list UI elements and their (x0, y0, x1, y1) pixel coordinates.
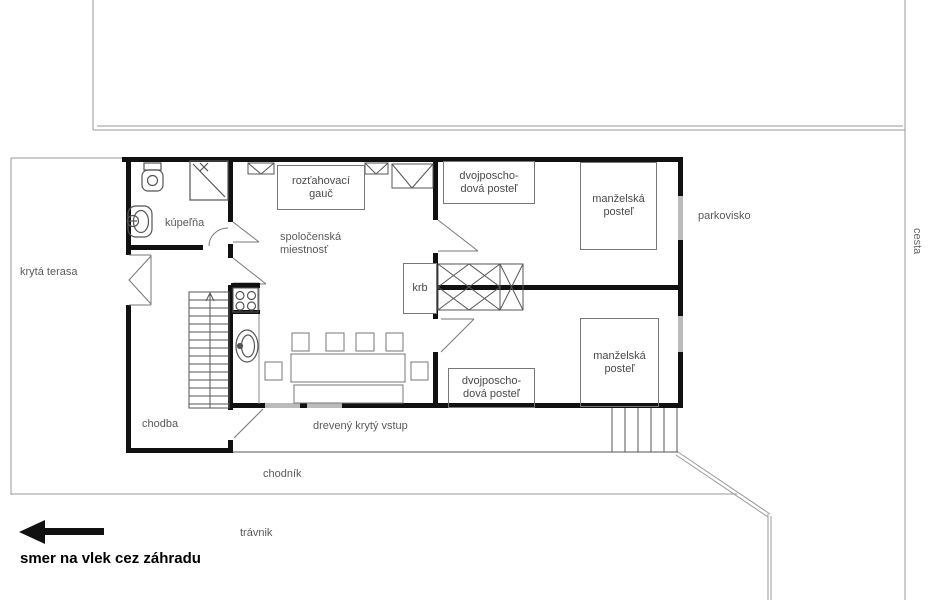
entrance-door (234, 409, 263, 438)
toilet (142, 163, 163, 191)
label-direction: smer na vlek cez záhradu (20, 550, 201, 567)
sofa-box: rozťahovací gauč (277, 165, 365, 210)
label-parking: parkovisko (698, 210, 751, 223)
terrace-door-symbol (129, 255, 151, 305)
label-entrance: drevený krytý vstup (313, 420, 408, 433)
plan-linework (0, 0, 932, 600)
chair (356, 333, 374, 351)
dining-bench (294, 385, 403, 403)
sofa-label-line1: rozťahovací (292, 175, 350, 188)
kitchen-sink (236, 330, 258, 362)
double-bed-label-line2: posteľ (604, 363, 634, 376)
label-hallway: chodba (142, 418, 178, 431)
double-bed-label-line1: manželská (592, 193, 645, 206)
dining-set (265, 333, 428, 403)
bathroom-door-arc (209, 228, 228, 246)
kitchen-counter (233, 283, 259, 404)
bunk-bed-label-line1: dvojposcho- (462, 375, 521, 388)
chair (326, 333, 344, 351)
garden-diagonal-path (676, 452, 771, 600)
bunk-bed-bottom-box: dvojposcho- dová posteľ (448, 368, 535, 408)
fireplace-label: krb (412, 282, 427, 295)
bathroom-sink (128, 206, 153, 237)
label-living-room: spoločenská miestnosť (280, 231, 341, 257)
chair (411, 362, 428, 380)
bedroom-bottom-door (441, 319, 474, 352)
fireplace-box: krb (403, 263, 437, 314)
chair (265, 362, 282, 380)
floor-plan: rozťahovací gauč dvojposcho- dová posteľ… (0, 0, 932, 600)
upper-building-outline (93, 0, 905, 130)
dining-table (291, 354, 405, 382)
label-road: cesta (911, 228, 923, 254)
bunk-bed-label-line1: dvojposcho- (459, 170, 518, 183)
bunk-bed-label-line2: dová posteľ (463, 388, 520, 401)
bunk-bed-top-box: dvojposcho- dová posteľ (443, 161, 535, 204)
double-bed-top-box: manželská posteľ (580, 162, 657, 250)
sofa-label-line2: gauč (309, 188, 333, 201)
bedroom-top-door (438, 220, 478, 251)
shower (190, 161, 228, 200)
stove (231, 283, 260, 314)
double-bed-bottom-box: manželská posteľ (580, 318, 659, 407)
double-bed-label-line1: manželská (593, 350, 646, 363)
label-terrace: krytá terasa (20, 266, 77, 279)
label-bathroom: kúpeľňa (165, 217, 204, 230)
bunk-bed-label-line2: dová posteľ (460, 183, 517, 196)
living-room-line2: miestnosť (280, 244, 328, 256)
chair (386, 333, 403, 351)
label-sidewalk: chodník (263, 468, 302, 481)
living-room-line1: spoločenská (280, 231, 341, 243)
hallway-double-door (233, 222, 266, 284)
double-bed-label-line2: posteľ (603, 206, 633, 219)
stairs (189, 292, 229, 408)
chair (292, 333, 309, 351)
entry-steps (612, 408, 677, 452)
label-lawn: trávnik (240, 527, 272, 540)
terrace-outline (11, 158, 126, 495)
direction-arrow-icon (19, 520, 104, 544)
